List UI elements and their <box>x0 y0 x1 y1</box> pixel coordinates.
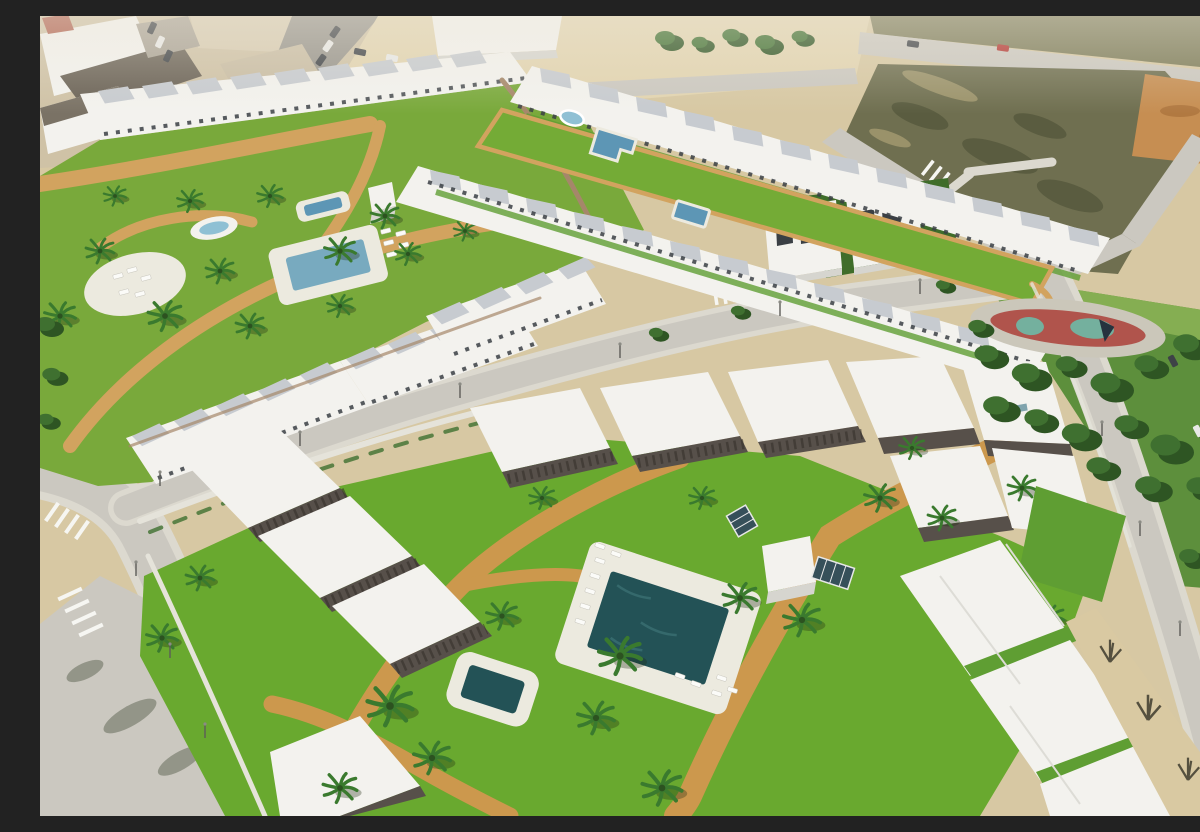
render-canvas <box>40 16 1200 816</box>
distance-haze <box>40 16 1200 296</box>
aerial-render <box>40 16 1200 816</box>
pool-pavilion-cube <box>762 536 816 592</box>
